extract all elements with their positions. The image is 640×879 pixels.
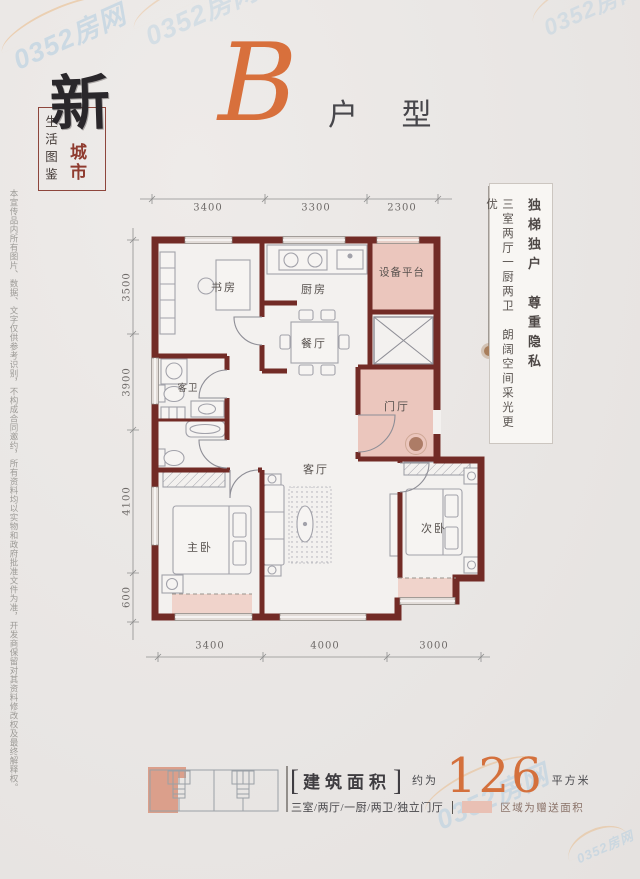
built-area-label: 建筑面积 bbox=[303, 768, 391, 793]
gift-area-swatch bbox=[462, 801, 492, 813]
gift-area-note: 区域为赠送面积 bbox=[500, 800, 584, 815]
room-label-living: 客厅 bbox=[303, 461, 329, 477]
dim-top-1: 3400 bbox=[193, 203, 222, 214]
bracket-close: ] bbox=[393, 765, 402, 795]
dim-bottom-3: 3000 bbox=[419, 641, 448, 652]
dim-left-2: 3900 bbox=[122, 367, 133, 396]
floorplan-drawing bbox=[0, 0, 640, 879]
room-label-dining: 餐厅 bbox=[301, 335, 327, 351]
dim-left-3: 4100 bbox=[122, 486, 133, 515]
layout-summary-row: 三室/两厅/一厨/两卫/独立门厅 区域为赠送面积 bbox=[291, 799, 584, 815]
dim-bottom-2: 4000 bbox=[310, 641, 339, 652]
elevator-shaft bbox=[374, 317, 433, 364]
divider bbox=[452, 801, 453, 814]
room-label-secondary-bedroom: 次卧 bbox=[421, 520, 447, 536]
dim-top-3: 2300 bbox=[387, 203, 416, 214]
dim-left-1: 3500 bbox=[122, 272, 133, 301]
dim-left-4: 600 bbox=[122, 586, 133, 608]
dim-top-2: 3300 bbox=[301, 203, 330, 214]
room-label-equipment-platform: 设备平台 bbox=[379, 265, 425, 280]
room-label-master-bedroom: 主卧 bbox=[187, 539, 213, 555]
room-label-foyer: 门厅 bbox=[384, 398, 410, 414]
room-label-kitchen: 厨房 bbox=[301, 281, 327, 297]
bracket-open: [ bbox=[290, 765, 299, 795]
entry-door-opening bbox=[433, 410, 441, 434]
room-label-study: 书房 bbox=[211, 279, 237, 295]
built-area-value: 126 bbox=[446, 755, 544, 798]
keyplan bbox=[148, 766, 287, 813]
layout-summary: 三室/两厅/一厨/两卫/独立门厅 bbox=[291, 799, 443, 815]
dim-bottom-1: 3400 bbox=[195, 641, 224, 652]
area-unit-label: 平方米 bbox=[552, 772, 591, 788]
room-label-guest-bath: 客卫 bbox=[177, 380, 198, 394]
built-area-row: [ 建筑面积 ] 约为 126 平方米 bbox=[290, 758, 591, 802]
approx-label: 约为 bbox=[412, 772, 438, 788]
floorplan-poster: 0352房网 0352房网 0352房网 0352房网 0352房网 0352房… bbox=[0, 0, 640, 879]
